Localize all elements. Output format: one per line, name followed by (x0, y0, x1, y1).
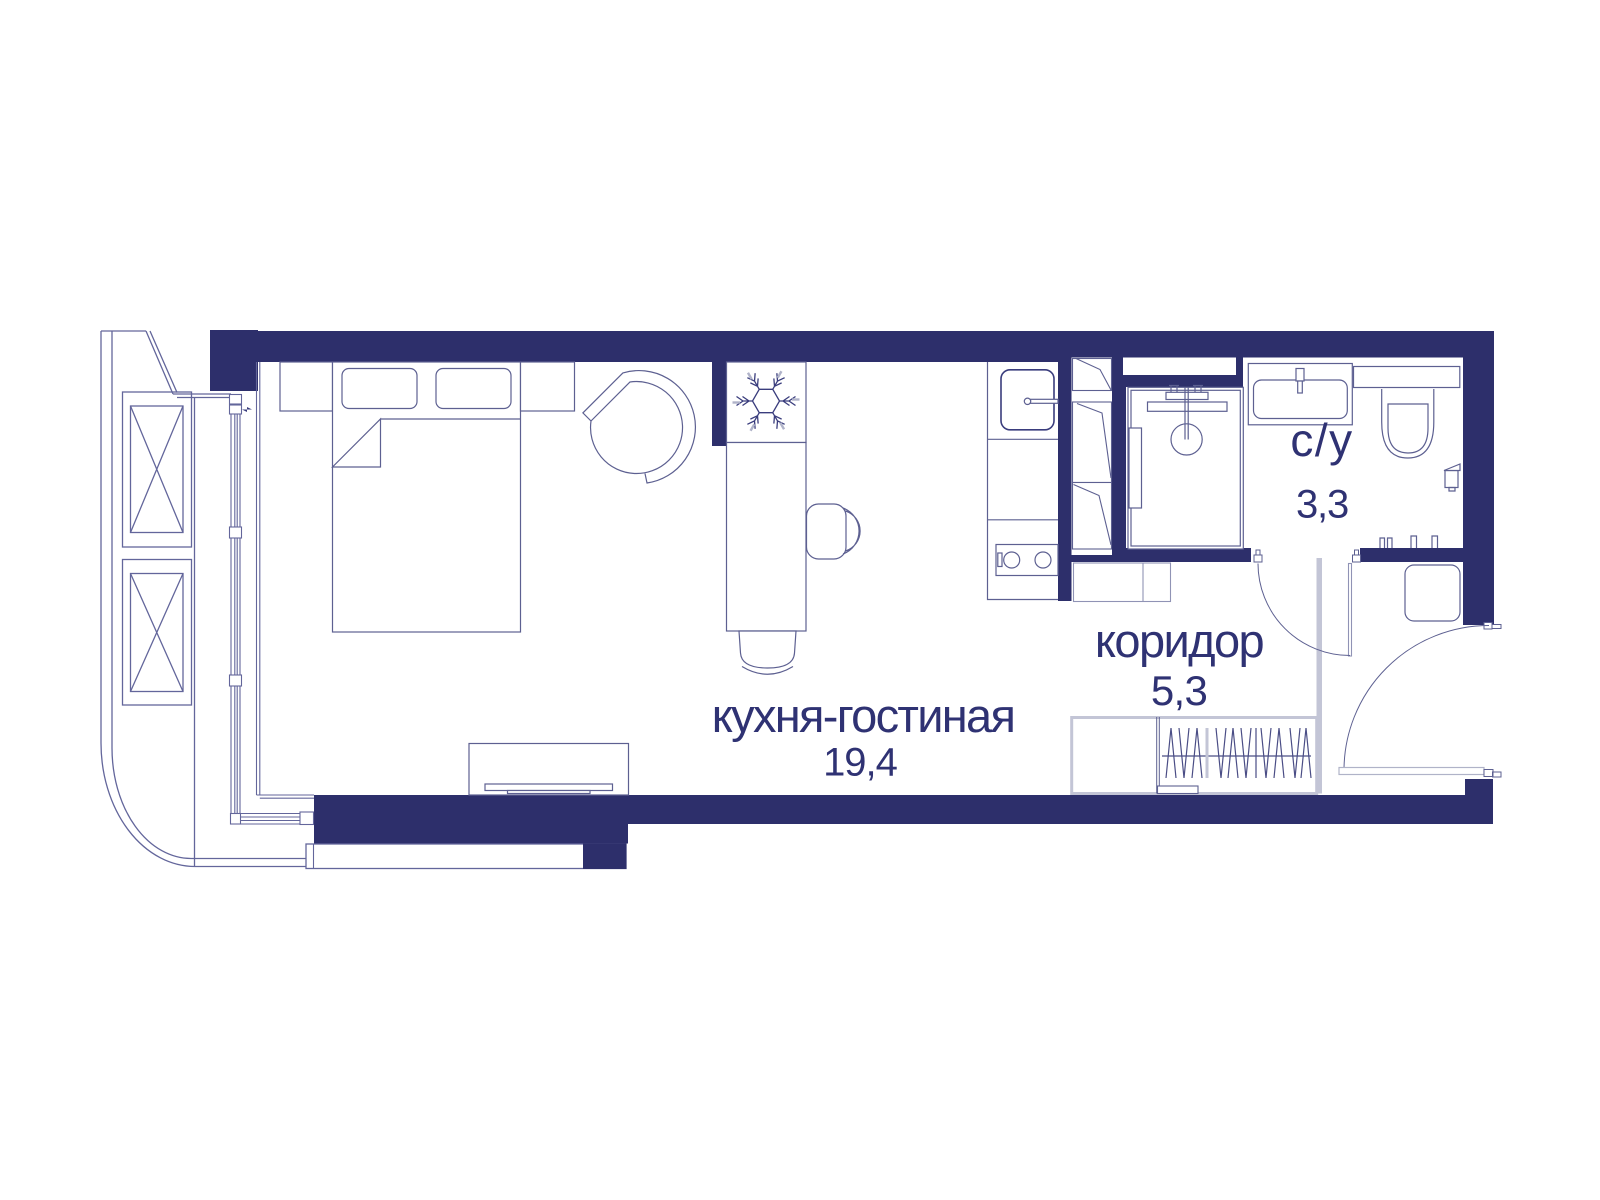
svg-text:19,4: 19,4 (823, 741, 898, 785)
svg-text:кухня-гостиная: кухня-гостиная (712, 689, 1014, 742)
svg-text:с/у: с/у (1290, 414, 1353, 466)
svg-text:3,3: 3,3 (1296, 483, 1348, 527)
svg-text:5,3: 5,3 (1151, 667, 1207, 714)
svg-text:коридор: коридор (1095, 614, 1264, 667)
